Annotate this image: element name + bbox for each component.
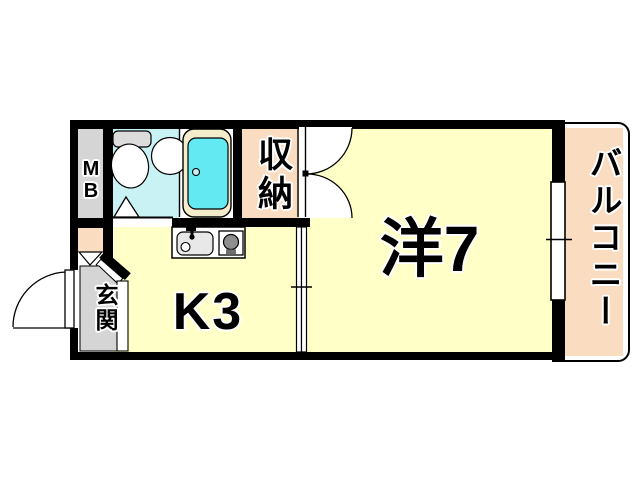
balcony-label: バルコニー [579, 146, 627, 331]
entrance-door-leaf [65, 270, 74, 328]
wall-top [70, 120, 565, 129]
wall-meterbox-right [103, 120, 113, 258]
wall-under-bath [172, 218, 310, 227]
bathtub-area [179, 127, 233, 218]
wall-under-meterbox [70, 218, 113, 228]
meter-box-label: MB [80, 158, 102, 202]
kitchen-label: K3 [162, 282, 254, 342]
entrance-label: 玄関 [88, 283, 122, 333]
wall-left-lower [70, 328, 78, 360]
entrance-door-swing-arc [13, 272, 66, 327]
bathroom-floor [113, 127, 179, 218]
wall-bath-storage-divider [233, 120, 242, 227]
entrance-triangle-marker [79, 252, 102, 265]
floorplan-canvas: 洋7 K3 収納 玄関 MB バルコニー [0, 0, 640, 480]
wall-right-upper [552, 120, 565, 182]
western-room-label: 洋7 [352, 198, 507, 290]
wall-left-upper [70, 120, 78, 270]
entrance-side-nook [78, 228, 103, 253]
wall-right-lower [552, 300, 565, 360]
storage-label: 収納 [247, 136, 298, 214]
wall-bottom [70, 352, 565, 360]
